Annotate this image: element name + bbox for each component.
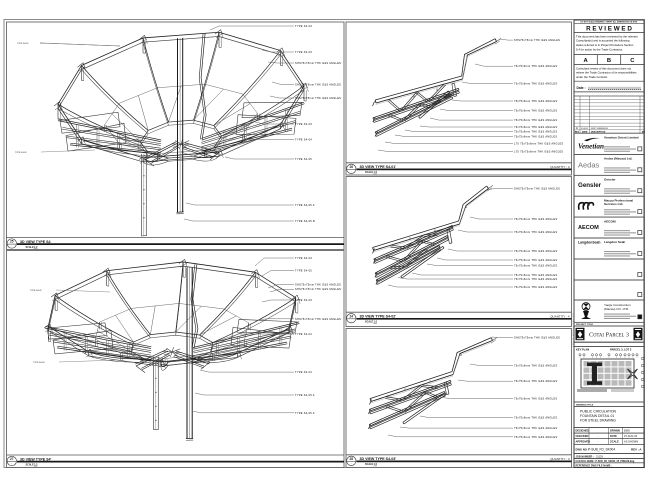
- svg-text:SHS75x75mm THK G&S ANGLES: SHS75x75mm THK G&S ANGLES: [295, 317, 341, 321]
- svg-text:75x75x6mm THK G&S ANGLES: 75x75x6mm THK G&S ANGLES: [514, 426, 557, 430]
- svg-text:SHS75x75mm THK G&S ANGLES: SHS75x75mm THK G&S ANGLES: [514, 336, 560, 340]
- svg-text:TYPE S4-04: TYPE S4-04: [295, 370, 312, 374]
- svg-text:AECOM: AECOM: [604, 219, 616, 223]
- svg-text:TYPE S4-01: TYPE S4-01: [17, 43, 29, 45]
- svg-text:DRAWN: DRAWN: [610, 429, 620, 433]
- svg-text:75x75x6mm THK G&S ANGLES: 75x75x6mm THK G&S ANGLES: [514, 379, 557, 383]
- svg-text:DRAWING TITLE: DRAWING TITLE: [576, 404, 594, 407]
- svg-text:TYPE S4-05: TYPE S4-05: [295, 268, 312, 272]
- svg-text:75x75x6mm THK G&S ANGLES: 75x75x6mm THK G&S ANGLES: [514, 217, 557, 221]
- svg-text:TYPE S4-04: TYPE S4-04: [295, 137, 312, 141]
- svg-text:Langdon Seah: Langdon Seah: [604, 240, 625, 244]
- svg-text:LangdonSeah: LangdonSeah: [578, 241, 600, 245]
- svg-text:PUBLIC CIRCULATION: PUBLIC CIRCULATION: [580, 410, 616, 414]
- svg-text:FIRST SUBMISSION: FIRST SUBMISSION: [591, 128, 609, 130]
- svg-text:Gensler: Gensler: [604, 178, 616, 182]
- svg-text:L75 75x75x6mm THK G&S ANGLES: L75 75x75x6mm THK G&S ANGLES: [514, 149, 563, 153]
- svg-text:75x75x6mm THK G&S ANGLES: 75x75x6mm THK G&S ANGLES: [514, 249, 557, 253]
- svg-text:TYPE S4-03: TYPE S4-03: [295, 298, 312, 302]
- svg-text:APPROVED: APPROVED: [576, 440, 591, 444]
- svg-text:07-08-15: 07-08-15: [581, 128, 588, 130]
- svg-text:75x75x6mm THK G&S ANGLES: 75x75x6mm THK G&S ANGLES: [514, 109, 557, 113]
- svg-text:75x75x6mm THK G&S ANGLES: 75x75x6mm THK G&S ANGLES: [514, 125, 557, 129]
- svg-text:under the Trade Contract.: under the Trade Contract.: [576, 75, 608, 79]
- svg-text:28: 28: [350, 457, 354, 461]
- svg-text:AS SHOWN: AS SHOWN: [624, 440, 638, 444]
- svg-text:SCALE: SCALE: [365, 463, 374, 466]
- svg-text:75x75x6mm THK G&S ANGLES: 75x75x6mm THK G&S ANGLES: [514, 99, 557, 103]
- svg-text:SCALE: SCALE: [26, 463, 35, 466]
- svg-text:TYPE S4-02: TYPE S4-02: [30, 290, 42, 292]
- svg-text:SHS75x75mm THK G&S ANGLES: SHS75x75mm THK G&S ANGLES: [514, 186, 560, 190]
- svg-text:07-AUG-15: 07-AUG-15: [624, 434, 638, 438]
- svg-text:75x75x6mm THK G&S ANGLES: 75x75x6mm THK G&S ANGLES: [514, 416, 557, 420]
- svg-text:FOR STEEL DRAWING: FOR STEEL DRAWING: [580, 418, 616, 422]
- svg-text:REFERENCE DWG FILE NAME :: REFERENCE DWG FILE NAME :: [576, 464, 612, 467]
- svg-text:TYPE S4-03: TYPE S4-03: [295, 24, 312, 28]
- svg-text:CAD FILE NAME : P-SUB_FD_SK004: CAD FILE NAME : P-SUB_FD_SK004_05_PRELIM…: [576, 460, 635, 463]
- svg-text:TYPE S4-03: TYPE S4-03: [295, 50, 312, 54]
- svg-text:SCALE: SCALE: [26, 246, 35, 249]
- svg-text:Venetian Orient Limited: Venetian Orient Limited: [604, 135, 639, 139]
- svg-text:KEY PLAN: KEY PLAN: [576, 348, 589, 352]
- svg-text:Aedas (Macau) Ltd.: Aedas (Macau) Ltd.: [604, 157, 633, 161]
- svg-text:75x75x6mm THK G&S ANGLES: 75x75x6mm THK G&S ANGLES: [514, 230, 557, 234]
- svg-text:TYPE S4-03: TYPE S4-03: [295, 122, 312, 126]
- svg-text:EMO: EMO: [624, 429, 630, 433]
- svg-text:FOUNTAIN DETAIL 01: FOUNTAIN DETAIL 01: [580, 414, 614, 418]
- svg-text:75x75x6mm THK G&S ANGLES: 75x75x6mm THK G&S ANGLES: [514, 435, 557, 439]
- svg-text:25: 25: [10, 240, 14, 244]
- svg-text:Gensler: Gensler: [578, 182, 602, 189]
- svg-text:TYPE S4-05 A: TYPE S4-05 A: [295, 411, 315, 415]
- svg-text:Date :: Date :: [577, 86, 586, 90]
- svg-text:Services Ltd.: Services Ltd.: [604, 202, 623, 206]
- svg-text:SHS75x75mm THK G&S ANGLES: SHS75x75mm THK G&S ANGLES: [295, 83, 341, 87]
- svg-text:SCALE: SCALE: [610, 440, 619, 444]
- svg-text:AECOM: AECOM: [578, 225, 599, 231]
- svg-text:TYPE S4-02: TYPE S4-02: [33, 362, 45, 364]
- svg-text:TYPE S4-05 B: TYPE S4-05 B: [295, 219, 315, 223]
- svg-text:R E V I E W E D: R E V I E W E D: [586, 25, 632, 32]
- svg-text:REV : A: REV : A: [631, 447, 642, 451]
- svg-text:75x75x6mm THK G&S ANGLES: 75x75x6mm THK G&S ANGLES: [514, 277, 557, 281]
- svg-text:SHS75x75mm THK G&S ANGLES: SHS75x75mm THK G&S ANGLES: [295, 283, 341, 287]
- svg-text:COTAI PARCEL 3: COTAI PARCEL 3: [589, 332, 629, 339]
- svg-text:DWG NO :: DWG NO :: [576, 447, 589, 451]
- svg-text:TYPE S4-05: TYPE S4-05: [295, 157, 312, 161]
- svg-text:24: 24: [350, 314, 354, 318]
- svg-text:PARCEL 3, LOT 2: PARCEL 3, LOT 2: [610, 348, 632, 352]
- svg-text:75x75x6mm THK G&S ANGLES: 75x75x6mm THK G&S ANGLES: [514, 130, 557, 134]
- svg-text:SHS75x75mm THK G&S ANGLES: SHS75x75mm THK G&S ANGLES: [295, 287, 341, 291]
- svg-text:B: B: [607, 58, 611, 64]
- svg-text:SCALE: SCALE: [365, 321, 374, 324]
- svg-text:75x75x6mm THK G&S ANGLES: 75x75x6mm THK G&S ANGLES: [514, 118, 557, 122]
- svg-text:SHS75x75mm THK G&S ANGLES: SHS75x75mm THK G&S ANGLES: [295, 96, 341, 100]
- svg-text:TYPE S4-03: TYPE S4-03: [295, 256, 312, 260]
- svg-text:75x75x6mm THK G&S ANGLES: 75x75x6mm THK G&S ANGLES: [514, 134, 557, 138]
- svg-text:31129: 31129: [596, 455, 603, 458]
- svg-text:TYPE S4-04: TYPE S4-04: [295, 332, 312, 336]
- svg-text:DATE: DATE: [610, 434, 617, 438]
- svg-text:Aedas: Aedas: [578, 160, 600, 169]
- svg-text:SHS75x75mm THK G&S ANGLES: SHS75x75mm THK G&S ANGLES: [295, 61, 341, 65]
- svg-text:5.4 for action by the Trade Co: 5.4 for action by the Trade Contractor.: [576, 47, 623, 51]
- svg-text:(Macau) CO. LTD.: (Macau) CO. LTD.: [604, 307, 629, 311]
- svg-text:75x75x6mm THK G&S ANGLES: 75x75x6mm THK G&S ANGLES: [514, 363, 557, 367]
- svg-text:SHS75x75mm THK G&S ANGLES: SHS75x75mm THK G&S ANGLES: [514, 38, 560, 42]
- svg-text:CHECKED: CHECKED: [576, 434, 589, 438]
- svg-text:L75 75x75x6mm THK G&S ANGLES: L75 75x75x6mm THK G&S ANGLES: [514, 141, 563, 145]
- svg-text:SCALE: SCALE: [365, 171, 374, 174]
- svg-text:JOB NUMBER :: JOB NUMBER :: [576, 455, 595, 458]
- svg-text:75x75x6mm THK G&S ANGLES: 75x75x6mm THK G&S ANGLES: [514, 396, 557, 400]
- svg-text:75x75x6mm THK G&S ANGLES: 75x75x6mm THK G&S ANGLES: [514, 64, 557, 68]
- svg-text:DO NOT SCALE DRAWING. VERIFY A: DO NOT SCALE DRAWING. VERIFY ALL DIMENSI…: [580, 21, 637, 24]
- svg-text:75x75x6mm THK G&S ANGLES: 75x75x6mm THK G&S ANGLES: [514, 263, 557, 267]
- svg-text:27: 27: [10, 457, 14, 461]
- svg-text:P-SUB_FD_SK004: P-SUB_FD_SK004: [588, 447, 615, 451]
- svg-text:-: -: [598, 435, 599, 438]
- svg-text:75x75x6mm THK G&S ANGLES: 75x75x6mm THK G&S ANGLES: [514, 82, 557, 86]
- svg-text:TYPE S4-05 A: TYPE S4-05 A: [295, 393, 315, 397]
- svg-text:26: 26: [350, 165, 354, 169]
- svg-text:75x75x6mm THK G&S ANGLES: 75x75x6mm THK G&S ANGLES: [514, 285, 557, 289]
- svg-text:Venetian: Venetian: [578, 142, 604, 150]
- svg-text:TYPE S4-02: TYPE S4-02: [15, 152, 27, 154]
- svg-text:75x75x6mm THK G&S ANGLES: 75x75x6mm THK G&S ANGLES: [514, 258, 557, 262]
- svg-text:DESIGNED: DESIGNED: [576, 429, 590, 433]
- svg-text:75x75x6mm THK G&S ANGLES: 75x75x6mm THK G&S ANGLES: [514, 273, 557, 277]
- svg-text:TYPE S4-05 A: TYPE S4-05 A: [295, 203, 315, 207]
- svg-text:-: -: [598, 441, 599, 444]
